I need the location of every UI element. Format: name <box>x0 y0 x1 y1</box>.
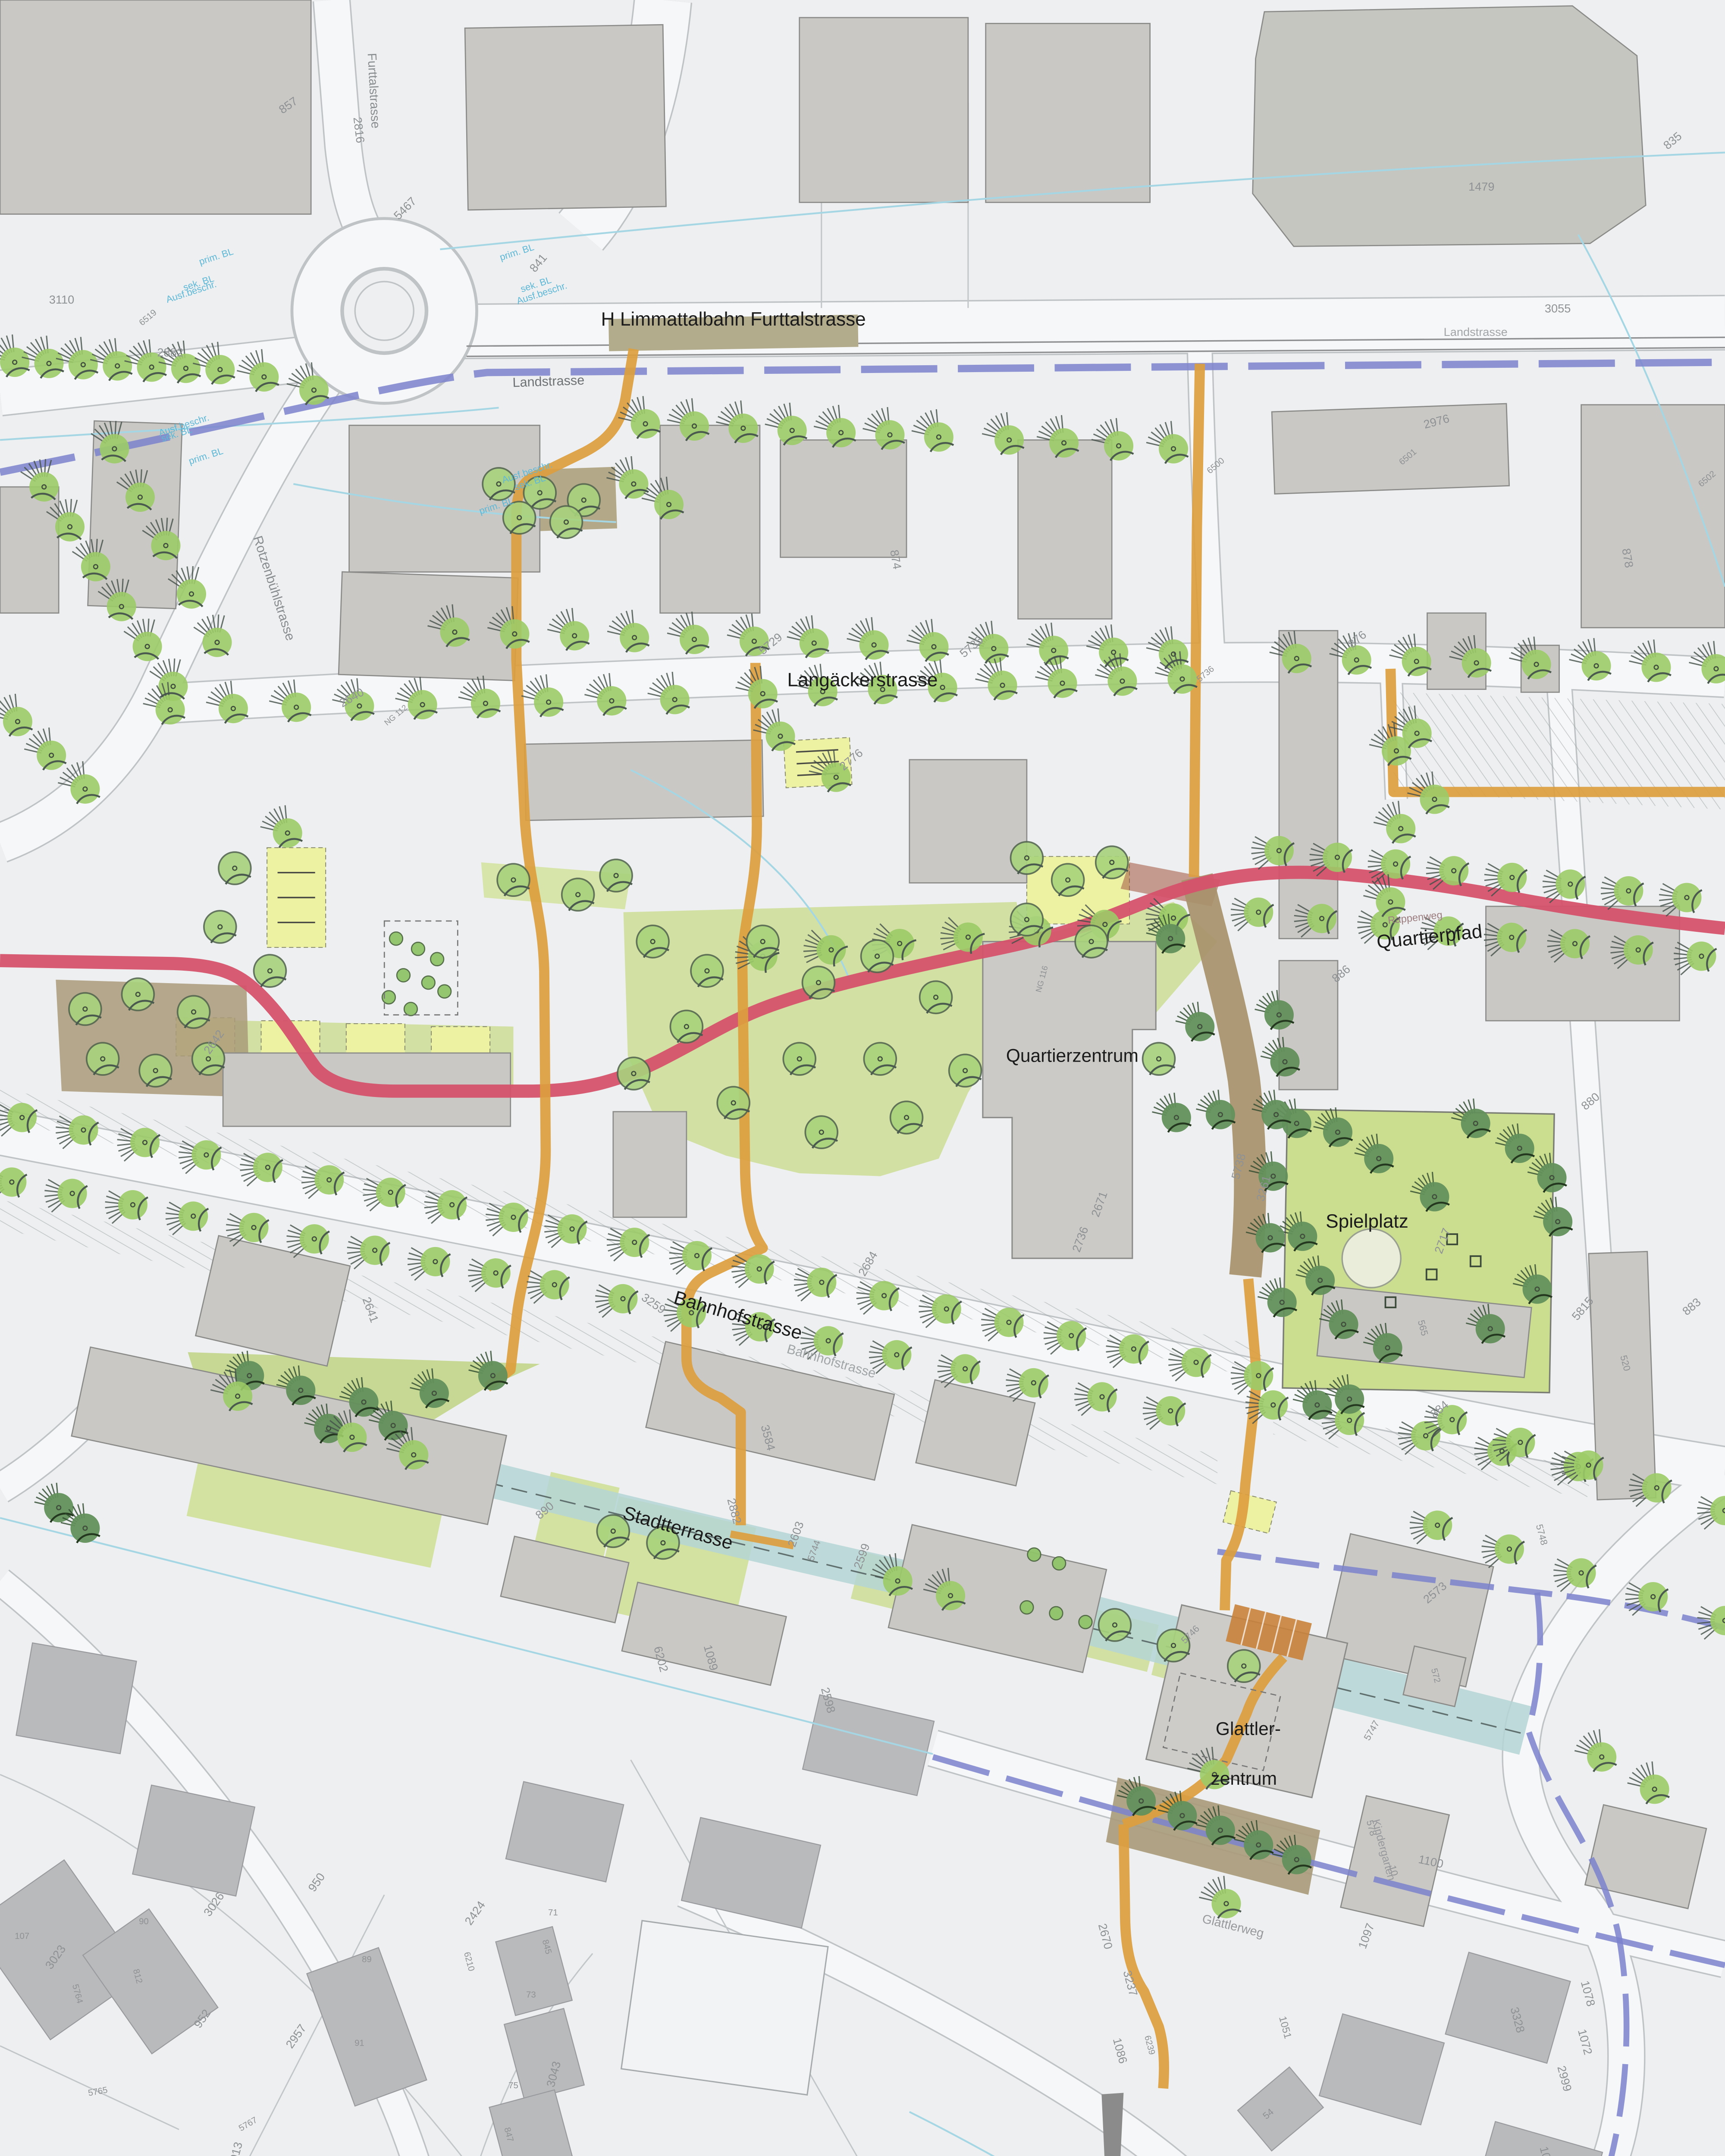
tree <box>1050 1607 1063 1620</box>
tree <box>618 1057 650 1090</box>
tree <box>1096 846 1128 878</box>
tree <box>204 911 236 943</box>
tree <box>717 1087 750 1119</box>
place-label: H Limmattalbahn Furttalstrasse <box>601 309 866 330</box>
tree <box>1028 1548 1041 1561</box>
parcel-label: 1479 <box>1468 180 1494 193</box>
building <box>524 740 763 820</box>
building <box>0 0 311 214</box>
tree <box>122 978 154 1011</box>
tree <box>411 942 425 956</box>
tree <box>864 1043 896 1075</box>
play-court <box>1342 1229 1401 1288</box>
place-label: Langäckerstrasse <box>787 670 938 691</box>
tree <box>805 1116 837 1148</box>
tree <box>69 993 101 1025</box>
building <box>1272 404 1509 494</box>
tree <box>691 955 723 987</box>
parcel-label: 90 <box>139 1917 149 1926</box>
building <box>465 25 666 210</box>
building <box>0 487 59 613</box>
parcel-label: 3055 <box>1545 301 1571 315</box>
site-plan-canvas: 3110288230552976546784185728166519874876… <box>0 0 1725 2156</box>
tree <box>1011 842 1043 874</box>
parcel-label: 75 <box>508 2081 518 2090</box>
tree <box>389 932 403 945</box>
tree <box>404 1003 417 1016</box>
building <box>613 1112 687 1217</box>
sports-field <box>621 1921 828 2095</box>
parcel-label: 71 <box>548 1908 558 1918</box>
tree <box>1020 1601 1034 1614</box>
tree <box>783 1043 815 1075</box>
parcel-label: 3110 <box>49 293 74 306</box>
tree <box>949 1054 982 1087</box>
parcel-label: 2882 <box>157 345 183 359</box>
tree <box>1052 1557 1066 1570</box>
footpath-orange <box>1194 364 1200 877</box>
building <box>800 18 968 203</box>
parcel-label: 91 <box>354 2039 364 2048</box>
tree <box>1075 925 1107 958</box>
building-mall <box>1253 6 1646 247</box>
tree <box>562 878 594 911</box>
play-area <box>267 848 326 947</box>
tree <box>87 1043 119 1075</box>
building <box>1581 405 1725 628</box>
building <box>986 23 1150 202</box>
tree <box>637 925 669 958</box>
tree <box>438 985 451 998</box>
tree <box>1079 1615 1092 1629</box>
tree <box>920 981 952 1013</box>
tree <box>803 966 835 999</box>
place-label: Quartierzentrum <box>1006 1046 1138 1066</box>
tree <box>422 976 435 989</box>
tree <box>1143 1043 1175 1075</box>
street-label: Landstrasse <box>1444 325 1508 338</box>
tree <box>1052 864 1084 896</box>
tree <box>550 506 583 538</box>
tree <box>891 1101 923 1134</box>
place-label: Spielplatz <box>1326 1211 1408 1232</box>
tree <box>219 852 251 884</box>
building <box>910 760 1027 883</box>
tree <box>670 1010 703 1043</box>
parcel-label: 73 <box>526 1990 536 1999</box>
building <box>1018 440 1112 619</box>
place-label: zentrum <box>1211 1769 1277 1789</box>
tree <box>746 925 779 958</box>
tree <box>600 859 632 892</box>
parcel-label: 89 <box>362 1955 372 1965</box>
tree <box>1228 1650 1260 1682</box>
tree <box>178 996 210 1028</box>
tree <box>861 940 894 972</box>
tree <box>139 1054 172 1087</box>
tree <box>497 864 530 896</box>
building <box>1279 630 1338 938</box>
tree <box>1011 903 1043 936</box>
street-label: Landstrasse <box>512 373 585 390</box>
building <box>660 425 760 613</box>
building-existing <box>16 1643 137 1754</box>
tree <box>397 968 410 982</box>
tree <box>1099 1609 1131 1641</box>
tree <box>254 955 286 987</box>
tree <box>430 953 444 966</box>
parcel-label: 107 <box>15 1931 29 1941</box>
roundabout <box>317 244 452 379</box>
place-label: Glattler- <box>1216 1719 1281 1739</box>
building <box>781 440 906 557</box>
site-plan-map: 3110288230552976546784185728166519874876… <box>0 0 1725 2156</box>
